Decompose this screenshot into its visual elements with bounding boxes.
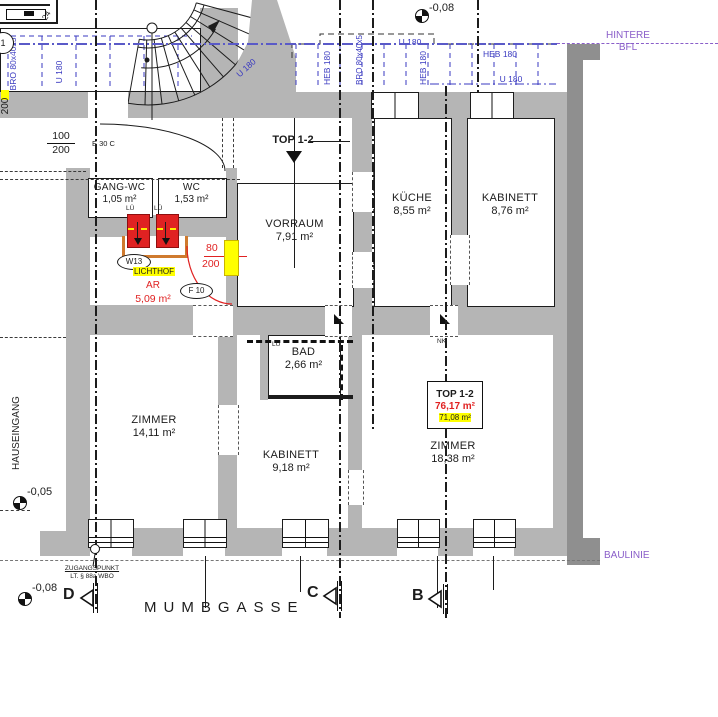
scale-bar-segment — [24, 11, 34, 16]
room-label-bad: BAD 2,66 m² — [268, 346, 339, 372]
window-tag-label: W13 — [126, 258, 142, 266]
door-tag-label: F 10 — [188, 287, 204, 295]
section-line-c — [339, 0, 341, 618]
room-label-zimmer1: ZIMMER 14,11 m² — [94, 414, 214, 440]
door-frame-dash — [233, 118, 234, 168]
stair-walkline-arrow — [208, 20, 220, 33]
beam-label-heb180: HEB 180 — [322, 51, 332, 85]
opening — [450, 235, 470, 285]
lichthof-code: AR — [128, 279, 178, 292]
room-name: KÜCHE — [374, 192, 450, 205]
wall — [352, 212, 372, 252]
new-wall-line — [247, 340, 353, 343]
section-letter-d: D — [63, 586, 75, 604]
vent-arrow-line — [165, 222, 166, 238]
zugangspunkt-label: ZUGANGSPUNKT LT. § 88a WBO — [60, 565, 124, 581]
axis-line-v — [477, 0, 479, 92]
position-tag-label: 1 — [0, 38, 5, 48]
beam-label-u180: U 180 — [500, 74, 523, 84]
room-vorraum-box — [237, 183, 354, 307]
door-frame-dash — [222, 118, 223, 168]
wall-bottom-band — [40, 531, 66, 556]
zugang-line2: LT. § 88a WBO — [60, 573, 124, 581]
wall — [260, 335, 268, 400]
lu-label: LÜ — [272, 341, 280, 348]
room-name: ZIMMER — [393, 440, 513, 453]
wall-bottom-band — [66, 528, 88, 556]
room-label-gang-wc: GANG-WC 1,05 m² — [88, 182, 151, 206]
room-name: VORRAUM — [237, 218, 352, 231]
vent-label: LÜ — [154, 205, 162, 212]
wall-bottom-band — [225, 528, 282, 556]
level-entry: -0,05 — [27, 486, 52, 498]
room-area: 1,05 m² — [88, 194, 151, 206]
axis-line — [0, 43, 557, 45]
wall-mid-band — [352, 305, 430, 335]
beam-label-heb180: HEB 180 — [483, 49, 517, 59]
room-area: 8,76 m² — [467, 205, 553, 218]
shaft — [470, 92, 514, 119]
room-name: ZIMMER — [94, 414, 214, 427]
section-mark-line — [93, 583, 98, 613]
floor-plan: BRO 80x40x5 U 180 U 180 — [0, 0, 718, 717]
wall-right-dark — [567, 60, 583, 555]
unit-entrance-label: TOP 1-2 — [263, 134, 323, 147]
beam-label-u180: U 180 — [54, 60, 64, 83]
window — [397, 519, 440, 548]
stair-wall — [222, 0, 296, 92]
section-letter-c: C — [307, 584, 319, 602]
room-label-vorraum: VORRAUM 7,91 m² — [237, 218, 352, 244]
lichthof-door-width: 80 — [206, 242, 218, 254]
room-name: WC — [158, 182, 225, 194]
unit-area-old: 71,08 m² — [439, 413, 471, 422]
room-label-kabinett1: KABINETT 8,76 m² — [467, 192, 553, 218]
section-mark-line — [443, 584, 448, 614]
level-street: -0,08 — [32, 582, 57, 594]
section-letter-b: B — [412, 587, 424, 605]
dim-line-v — [300, 556, 301, 592]
dim-line — [0, 179, 240, 180]
beam-annotations-right: HEB 180 BRO 80x40x5 HEB 180 U 180 HEB 18… — [290, 30, 558, 92]
door-highlight — [224, 240, 239, 276]
wall — [352, 118, 372, 172]
wall — [218, 335, 237, 405]
wall-bottom-band — [514, 528, 567, 556]
nk-label: NK — [437, 338, 446, 345]
hintere-bfl-label: HINTERE BFL — [600, 30, 656, 54]
frame-line — [0, 4, 50, 6]
room-label-zimmer2: ZIMMER 18,38 m² — [393, 440, 513, 466]
room-area: 8,55 m² — [374, 205, 450, 218]
lichthof-door-height: 200 — [202, 258, 220, 270]
lichthof-area: 5,09 m² — [128, 293, 178, 306]
spiral-stair: U 180 — [128, 0, 300, 122]
opening — [352, 172, 374, 212]
room-label-wc: WC 1,53 m² — [158, 182, 225, 206]
wall-mid-band — [66, 305, 193, 335]
wall-right-outer — [553, 92, 567, 556]
window — [282, 519, 329, 548]
beam-label-heb180: HEB 180 — [418, 51, 428, 85]
hintere-line2: BFL — [600, 42, 656, 54]
dim-line — [0, 171, 86, 172]
level-top: -0,08 — [429, 2, 454, 14]
room-area: 9,18 m² — [231, 462, 351, 475]
room-label-kabinett2: KABINETT 9,18 m² — [231, 449, 351, 475]
vent-arrow-icon — [162, 238, 170, 245]
opening — [352, 252, 374, 288]
section-line-b — [445, 86, 447, 618]
door-tag: F 10 — [180, 283, 213, 299]
baulinie-label: BAULINIE — [604, 550, 650, 561]
section-line-d — [95, 0, 97, 610]
street-label: MUMBGASSE — [144, 599, 305, 616]
dim-line — [0, 337, 66, 338]
vent-label: LÜ — [126, 205, 134, 212]
section-triangle-icon — [322, 586, 338, 606]
room-name: KABINETT — [231, 449, 351, 462]
stair-post-dot — [145, 58, 150, 63]
room-area: 7,91 m² — [237, 231, 352, 244]
unit-info-box: TOP 1-2 76,17 m² 71,08 m² — [427, 381, 483, 429]
wall-height-label: 200 — [0, 90, 12, 122]
vent-arrow-icon — [134, 238, 142, 245]
vent-arrow-line — [137, 222, 138, 238]
beam-label-u180: U 180 — [399, 37, 422, 47]
hauseingang-label: HAUSEINGANG — [11, 393, 23, 473]
room-area: 14,11 m² — [94, 427, 214, 440]
frame-line — [56, 0, 58, 24]
wall-bottom-band — [438, 528, 473, 556]
wall — [348, 505, 362, 530]
unit-area-new: 76,17 m² — [435, 401, 475, 412]
wall-bottom-band — [327, 528, 397, 556]
hintere-line1: HINTERE — [600, 30, 656, 42]
room-name: KABINETT — [467, 192, 553, 205]
wall-mid-band — [458, 305, 565, 335]
fire-rating-label: E 30 C — [92, 140, 115, 147]
shaft — [371, 92, 419, 119]
door-width: 100 — [47, 130, 75, 144]
wall — [450, 118, 468, 235]
frame-line — [0, 22, 57, 24]
wall-right-dark — [567, 44, 600, 60]
room-area: 1,53 m² — [158, 194, 225, 206]
wall-bottom-band — [132, 528, 183, 556]
room-label-kueche: KÜCHE 8,55 m² — [374, 192, 450, 218]
window — [473, 519, 516, 548]
zugang-line1: ZUGANGSPUNKT — [60, 565, 124, 573]
opening — [218, 405, 239, 455]
room-area: 2,66 m² — [268, 359, 339, 372]
door-height: 200 — [47, 144, 75, 157]
duct-axis — [157, 228, 176, 230]
wall-mid-band — [233, 305, 325, 335]
room-name: GANG-WC — [88, 182, 151, 194]
section-mark-line — [337, 581, 342, 611]
entry-door-dim: 100 200 — [47, 130, 75, 157]
entrance-arrow-icon — [286, 151, 302, 163]
opening — [193, 305, 233, 337]
room-area: 18,38 m² — [393, 453, 513, 466]
section-triangle-icon — [427, 589, 443, 609]
lichthof-label: LICHTHOF — [133, 267, 175, 276]
dim-line-v — [493, 556, 494, 590]
window — [183, 519, 227, 548]
unit-title: TOP 1-2 — [436, 389, 473, 400]
opening — [348, 470, 364, 505]
